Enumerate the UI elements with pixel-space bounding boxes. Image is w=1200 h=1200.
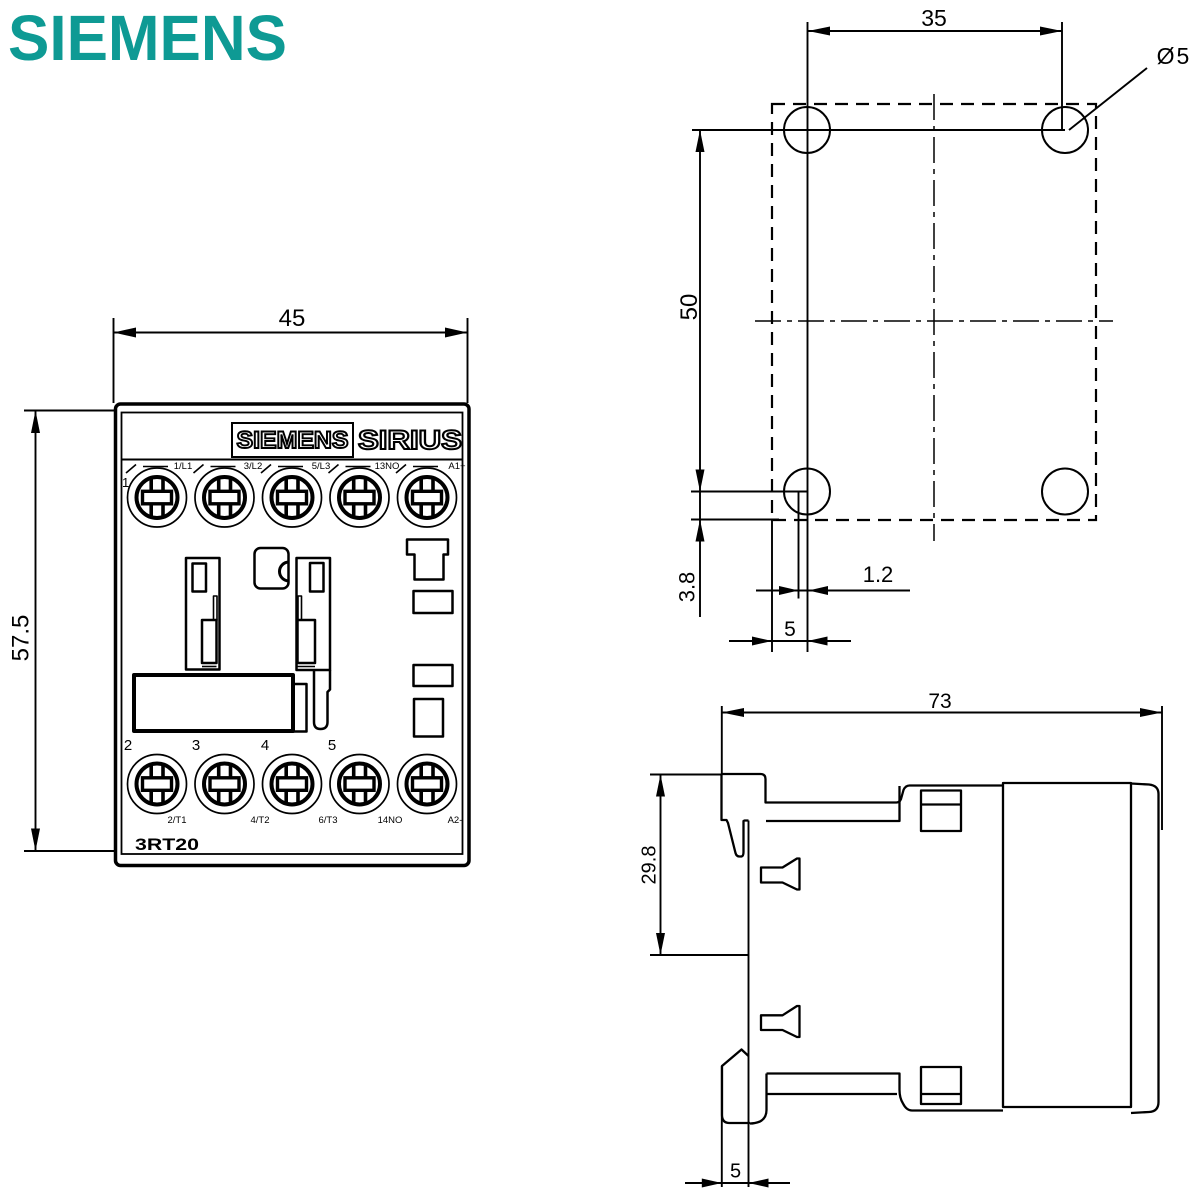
- svg-text:1/L1: 1/L1: [174, 461, 193, 472]
- svg-text:5: 5: [730, 1161, 741, 1183]
- svg-text:5/L3: 5/L3: [312, 461, 331, 472]
- svg-text:1.2: 1.2: [863, 562, 894, 587]
- svg-text:A2-: A2-: [448, 815, 463, 826]
- svg-text:45: 45: [279, 305, 306, 332]
- svg-text:Ø5: Ø5: [1157, 43, 1192, 69]
- svg-text:2: 2: [124, 737, 132, 754]
- svg-text:3.8: 3.8: [675, 572, 700, 603]
- svg-text:3RT20: 3RT20: [135, 836, 199, 854]
- svg-text:14NO: 14NO: [378, 815, 403, 826]
- svg-text:1: 1: [122, 475, 129, 490]
- svg-text:2/T1: 2/T1: [167, 815, 186, 826]
- svg-text:3/L2: 3/L2: [244, 461, 263, 472]
- svg-text:4/T2: 4/T2: [250, 815, 269, 826]
- svg-text:73: 73: [928, 690, 951, 713]
- svg-text:6/T3: 6/T3: [318, 815, 337, 826]
- svg-text:57.5: 57.5: [8, 615, 35, 662]
- svg-text:4: 4: [261, 737, 269, 754]
- svg-text:SIEMENS: SIEMENS: [8, 2, 287, 74]
- svg-text:SIRIUS: SIRIUS: [358, 425, 462, 455]
- svg-text:5: 5: [328, 737, 336, 754]
- svg-text:35: 35: [921, 5, 947, 31]
- svg-text:50: 50: [676, 294, 703, 321]
- svg-text:29.8: 29.8: [639, 846, 661, 885]
- svg-text:A1+: A1+: [448, 461, 466, 472]
- svg-text:13NO: 13NO: [375, 461, 400, 472]
- svg-text:3: 3: [192, 737, 200, 754]
- svg-text:5: 5: [784, 618, 796, 641]
- svg-text:SIEMENS: SIEMENS: [237, 427, 349, 454]
